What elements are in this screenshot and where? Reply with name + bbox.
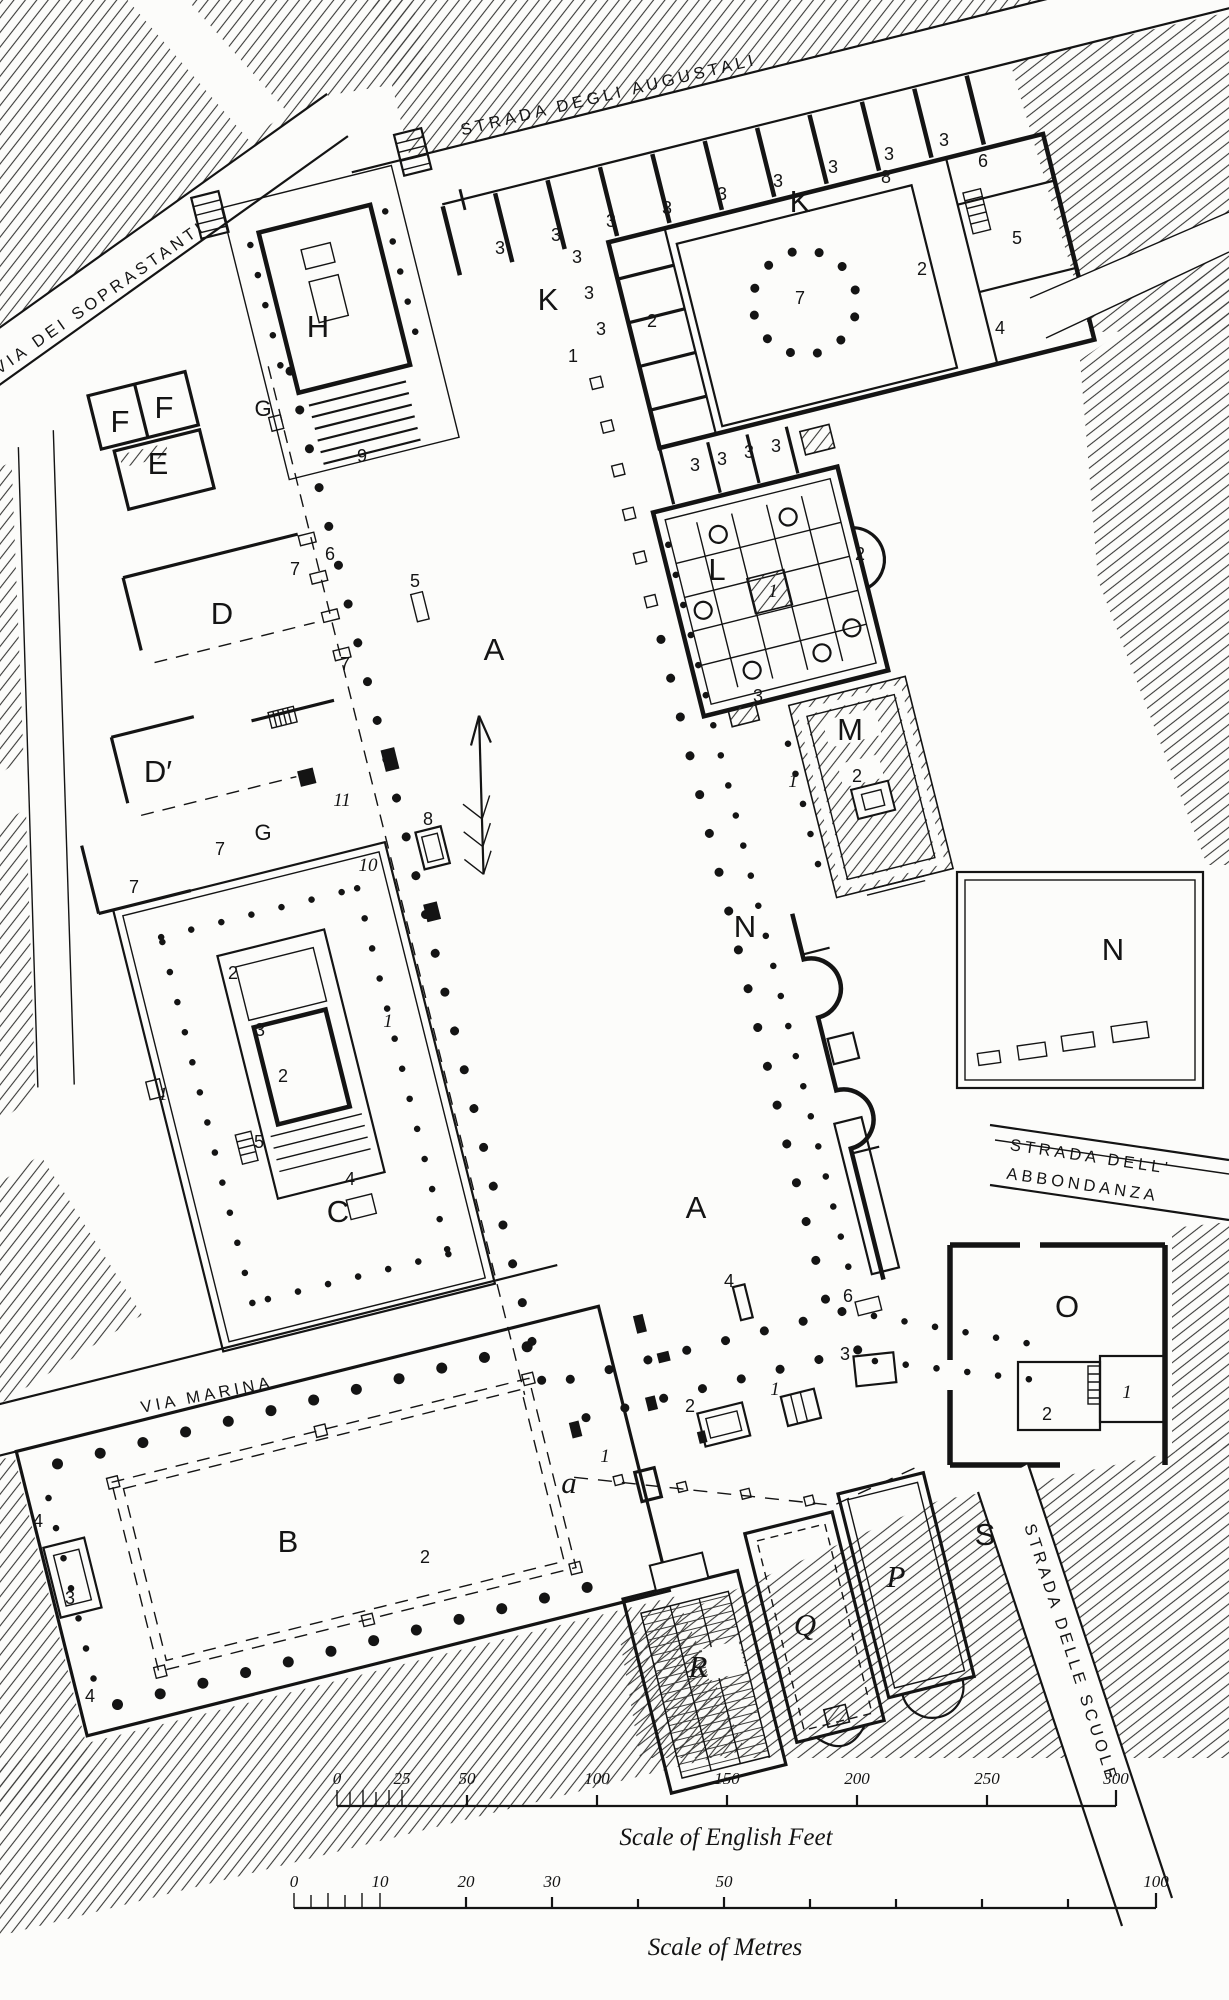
label-n11: 11 xyxy=(333,790,351,811)
label-n1: 1 xyxy=(768,581,778,602)
label-n8: 8 xyxy=(423,809,433,829)
metres-tick-10: 10 xyxy=(372,1872,390,1891)
label-n3: 3 xyxy=(753,686,763,706)
label-n3: 3 xyxy=(771,436,781,456)
label-n3: 3 xyxy=(773,171,783,191)
label-d-prime: D′ xyxy=(144,754,172,789)
colonnade-dots-se-diag xyxy=(874,1279,1038,1382)
label-n1: 1 xyxy=(770,1379,780,1400)
feet-tick-200: 200 xyxy=(844,1769,870,1788)
hatched-stair-block xyxy=(800,424,835,455)
colonnade-dots-se-diag2 xyxy=(875,1325,1032,1415)
label-n2: 2 xyxy=(228,963,238,983)
label-n3: 3 xyxy=(596,319,606,339)
building-k-macellum xyxy=(608,134,1108,504)
label-a-small: a xyxy=(561,1465,577,1500)
labels-west-numbers: 9 6 7 5 7 11 10 7 7 8 xyxy=(129,446,433,897)
label-b-basilica: B xyxy=(278,1524,299,1559)
label-n8: 8 xyxy=(881,167,891,187)
forum-plan-svg: STRADA DEGLI AUGUSTALI VIA DEI SOPRASTAN… xyxy=(0,0,1229,2000)
colonnade-dots-west xyxy=(290,371,542,1382)
label-n2: 2 xyxy=(852,766,862,786)
label-n7: 7 xyxy=(795,288,805,308)
label-a-forum-north: A xyxy=(484,632,505,667)
label-n1: 1 xyxy=(158,1084,168,1105)
building-n-east xyxy=(957,872,1203,1088)
label-n3: 3 xyxy=(828,157,838,177)
north-arrow-icon xyxy=(431,714,521,877)
label-n4: 4 xyxy=(33,1511,43,1531)
stairs-icon xyxy=(1088,1366,1100,1404)
label-n3: 3 xyxy=(662,198,672,218)
label-n1: 1 xyxy=(383,1011,393,1032)
feet-tick-25: 25 xyxy=(394,1769,411,1788)
building-n-porch xyxy=(792,907,912,1280)
label-n2: 2 xyxy=(1042,1404,1052,1424)
stairs-icon xyxy=(963,189,991,234)
label-n7: 7 xyxy=(340,654,350,674)
metres-tick-50: 50 xyxy=(716,1872,734,1891)
label-n6: 6 xyxy=(325,544,335,564)
label-n3: 3 xyxy=(840,1344,850,1364)
label-n4: 4 xyxy=(85,1686,95,1706)
label-n1: 1 xyxy=(568,346,578,366)
label-m-temple: M xyxy=(837,712,863,747)
label-n6: 6 xyxy=(978,151,988,171)
label-n4: 4 xyxy=(724,1271,734,1291)
scale-metres-title: Scale of Metres xyxy=(648,1934,803,1961)
label-g-1: G xyxy=(254,396,271,421)
metres-tick-0: 0 xyxy=(290,1872,299,1891)
forum-west-monuments xyxy=(228,510,500,947)
feet-tick-100: 100 xyxy=(584,1769,610,1788)
city-block-hatch-ne2 xyxy=(1080,258,1229,865)
label-n1: 1 xyxy=(600,1446,610,1467)
label-d: D xyxy=(211,596,233,631)
label-q: Q xyxy=(794,1607,816,1642)
label-n3: 3 xyxy=(884,144,894,164)
label-n3: 3 xyxy=(65,1588,75,1608)
label-l-sanctuary: L xyxy=(708,552,725,587)
label-n6: 6 xyxy=(843,1286,853,1306)
city-block-hatch-east-of-o xyxy=(1172,1222,1229,1452)
label-n3: 3 xyxy=(717,449,727,469)
label-n3: 3 xyxy=(717,184,727,204)
label-n7: 7 xyxy=(290,559,300,579)
building-o-comitium xyxy=(950,1245,1165,1465)
label-n2: 2 xyxy=(647,311,657,331)
label-n5: 5 xyxy=(410,571,420,591)
label-o-comitium: O xyxy=(1055,1289,1079,1324)
label-n3: 3 xyxy=(572,247,582,267)
labels-o-numbers: 1 2 xyxy=(1042,1382,1132,1424)
hatched-stair-block xyxy=(728,702,760,726)
pompeii-forum-plan-page: STRADA DEGLI AUGUSTALI VIA DEI SOPRASTAN… xyxy=(0,0,1229,2000)
label-k-2-macellum: K xyxy=(790,184,811,219)
metres-tick-20: 20 xyxy=(458,1872,476,1891)
label-n-eumachia: N xyxy=(1102,932,1124,967)
label-a-forum-south: A xyxy=(686,1190,707,1225)
label-n3: 3 xyxy=(255,1020,265,1040)
label-n7: 7 xyxy=(215,839,225,859)
scale-feet-title: Scale of English Feet xyxy=(619,1824,833,1851)
label-n3: 3 xyxy=(690,455,700,475)
labels-south-numbers: 2 1 3 6 4 xyxy=(685,1271,853,1416)
label-n7: 7 xyxy=(129,877,139,897)
colonnade-dots-east-inner xyxy=(668,545,854,1292)
label-n2: 2 xyxy=(917,259,927,279)
label-n5: 5 xyxy=(1012,228,1022,248)
label-n3: 3 xyxy=(939,130,949,150)
feet-tick-50: 50 xyxy=(459,1769,477,1788)
label-f-2: F xyxy=(155,390,174,425)
label-n2: 2 xyxy=(278,1066,288,1086)
label-n9: 9 xyxy=(357,446,367,466)
label-n5: 5 xyxy=(254,1132,264,1152)
feet-tick-250: 250 xyxy=(974,1769,1000,1788)
label-k-1: K xyxy=(538,282,559,317)
label-n3: 3 xyxy=(606,211,616,231)
label-p: P xyxy=(886,1559,906,1594)
label-n2: 2 xyxy=(855,544,865,564)
labels-c-numbers: 2 3 2 5 4 1 1 xyxy=(158,963,393,1189)
building-d-houses xyxy=(21,534,375,913)
building-m-temple xyxy=(779,676,954,904)
label-n2: 2 xyxy=(685,1396,695,1416)
label-n10: 10 xyxy=(359,855,379,876)
label-n1: 1 xyxy=(788,771,798,792)
label-s: S xyxy=(975,1517,996,1552)
label-e: E xyxy=(148,446,169,481)
label-n4: 4 xyxy=(995,318,1005,338)
label-n3: 3 xyxy=(551,225,561,245)
label-f-1: F xyxy=(111,404,130,439)
label-n2: 2 xyxy=(420,1547,430,1567)
label-n3: 3 xyxy=(495,238,505,258)
label-n4: 4 xyxy=(345,1169,355,1189)
label-r: R xyxy=(688,1649,708,1684)
feet-tick-150: 150 xyxy=(714,1769,740,1788)
metres-tick-100: 100 xyxy=(1143,1872,1169,1891)
label-h-temple-jupiter: H xyxy=(307,309,329,344)
feet-tick-300: 300 xyxy=(1102,1769,1129,1788)
label-n3: 3 xyxy=(584,283,594,303)
label-n1: 1 xyxy=(1122,1382,1132,1403)
label-c-temple-apollo: C xyxy=(327,1194,349,1229)
scale-of-metres: 0 10 20 30 50 100 Scale of Metres xyxy=(290,1872,1170,1961)
label-n-porch: N xyxy=(734,909,756,944)
metres-tick-30: 30 xyxy=(543,1872,562,1891)
label-g-2: G xyxy=(254,820,271,845)
label-n3: 3 xyxy=(744,442,754,462)
feet-tick-0: 0 xyxy=(333,1769,342,1788)
